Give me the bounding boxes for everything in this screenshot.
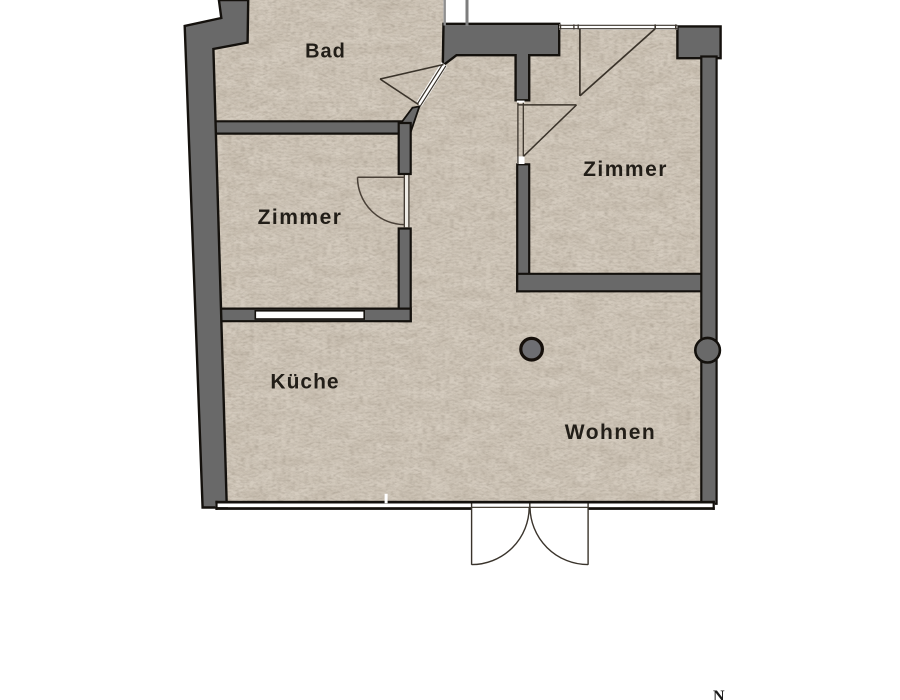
svg-text:N: N: [713, 688, 725, 700]
svg-text:Wohnen: Wohnen: [565, 421, 656, 444]
svg-text:Küche: Küche: [270, 371, 339, 394]
svg-text:Zimmer: Zimmer: [583, 158, 668, 181]
svg-text:Zimmer: Zimmer: [258, 206, 343, 229]
svg-text:Bad: Bad: [305, 41, 346, 63]
